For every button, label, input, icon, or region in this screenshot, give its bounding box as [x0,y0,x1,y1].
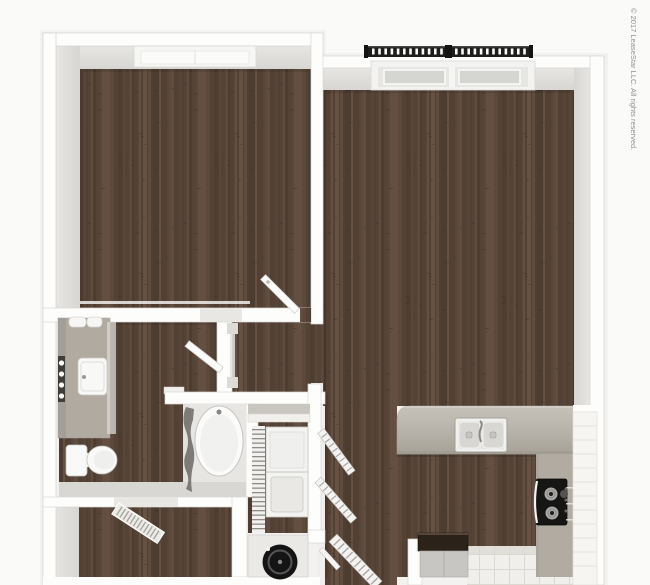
svg-text:© 2017 LeaseStar LLC. All righ: © 2017 LeaseStar LLC. All rights reserve… [629,8,638,150]
